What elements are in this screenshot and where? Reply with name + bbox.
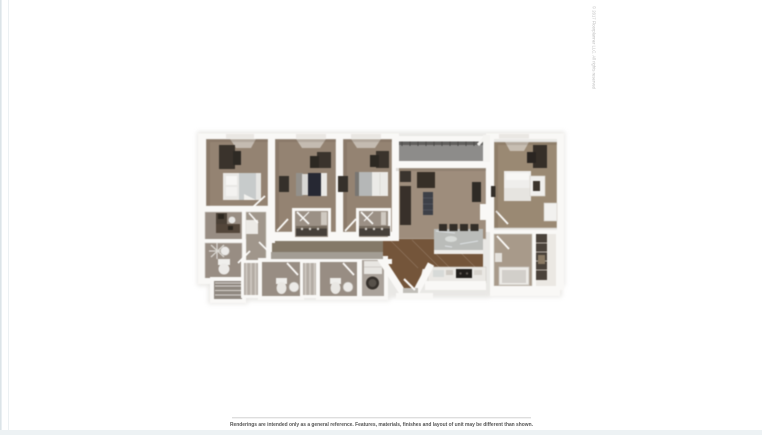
- svg-text:© 2017 Floorplanner LLC. All r: © 2017 Floorplanner LLC. All rights rese…: [592, 6, 597, 90]
- svg-text:Renderings are intended only a: Renderings are intended only as a genera…: [230, 422, 534, 428]
